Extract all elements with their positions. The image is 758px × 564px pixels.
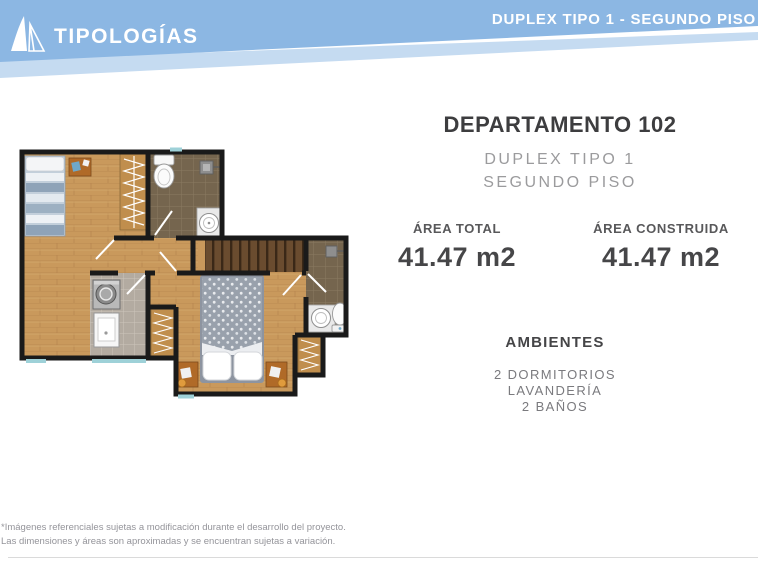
- double-bed: [200, 275, 264, 383]
- closet-master-right: [298, 337, 321, 373]
- ambientes-section: AMBIENTES 2 DORMITORIOS LAVANDERÍA 2 BAÑ…: [430, 334, 680, 415]
- disclaimer: *Imágenes referenciales sujetas a modifi…: [1, 521, 346, 548]
- ambientes-heading: AMBIENTES: [430, 334, 680, 351]
- closet-master-left: [151, 309, 175, 358]
- unit-subtitle: DUPLEX TIPO 1 SEGUNDO PISO: [382, 148, 738, 194]
- typology-page: TIPOLOGÍAS DUPLEX TIPO 1 - SEGUNDO PISO: [0, 0, 758, 564]
- unit-subtitle-line2: SEGUNDO PISO: [382, 171, 738, 194]
- brand: TIPOLOGÍAS: [8, 14, 199, 54]
- floor-plan-image: [14, 147, 350, 399]
- bathroom-1-sink: [197, 208, 222, 238]
- header-page-title: DUPLEX TIPO 1 - SEGUNDO PISO: [492, 11, 756, 28]
- nightstand-left: [177, 362, 198, 387]
- bedroom-1-desk: [69, 158, 91, 176]
- ambientes-item-dormitorios: 2 DORMITORIOS: [430, 367, 680, 383]
- bathroom-2-sink: [308, 305, 335, 332]
- brand-title: TIPOLOGÍAS: [54, 25, 199, 49]
- stat-area-total: ÁREA TOTAL 41.47 m2: [382, 221, 532, 273]
- sail-triangles-logo-icon: [8, 14, 46, 54]
- unit-subtitle-line1: DUPLEX TIPO 1: [382, 148, 738, 171]
- disclaimer-line2: Las dimensiones y áreas son aproximadas …: [1, 535, 346, 549]
- bathroom-1-toilet: [154, 155, 174, 188]
- closet-bedroom-1: [120, 154, 148, 230]
- stat-area-construida-label: ÁREA CONSTRUIDA: [568, 221, 754, 236]
- washing-machine: [93, 280, 120, 309]
- disclaimer-line1: *Imágenes referenciales sujetas a modifi…: [1, 521, 346, 535]
- ambientes-item-banos: 2 BAÑOS: [430, 399, 680, 415]
- stairs: [198, 239, 304, 272]
- ambientes-item-lavanderia: LAVANDERÍA: [430, 383, 680, 399]
- laundry-sink: [94, 313, 119, 347]
- stat-area-construida-value: 41.47 m2: [568, 242, 754, 273]
- single-bed: [25, 156, 65, 236]
- ambientes-list: 2 DORMITORIOS LAVANDERÍA 2 BAÑOS: [430, 367, 680, 415]
- stat-area-total-value: 41.47 m2: [382, 242, 532, 273]
- bottom-divider: [8, 557, 758, 558]
- stat-area-construida: ÁREA CONSTRUIDA 41.47 m2: [568, 221, 754, 273]
- unit-title: DEPARTAMENTO 102: [382, 112, 738, 138]
- nightstand-right: [266, 362, 287, 387]
- stat-area-total-label: ÁREA TOTAL: [382, 221, 532, 236]
